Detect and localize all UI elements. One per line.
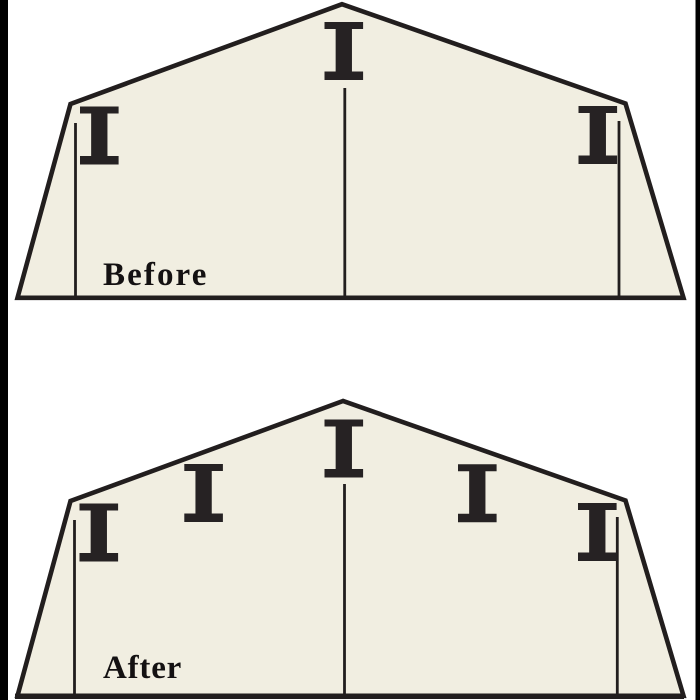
svg-text:Before: Before <box>103 257 208 293</box>
svg-text:After: After <box>103 650 182 686</box>
